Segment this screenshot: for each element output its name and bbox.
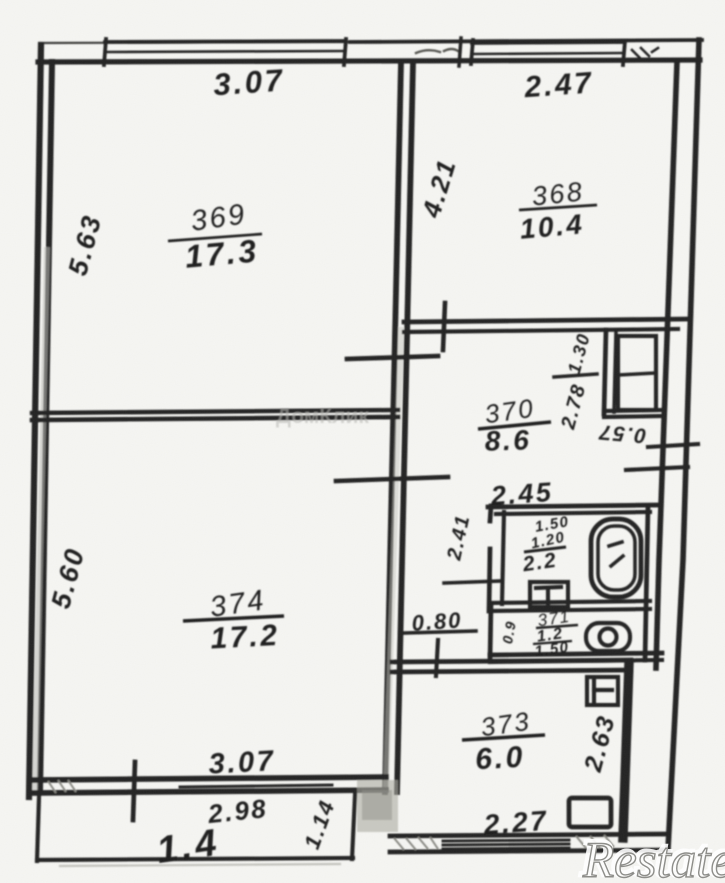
svg-text:ДомКлик: ДомКлик bbox=[276, 405, 369, 428]
svg-text:Restate: Restate bbox=[582, 833, 725, 883]
